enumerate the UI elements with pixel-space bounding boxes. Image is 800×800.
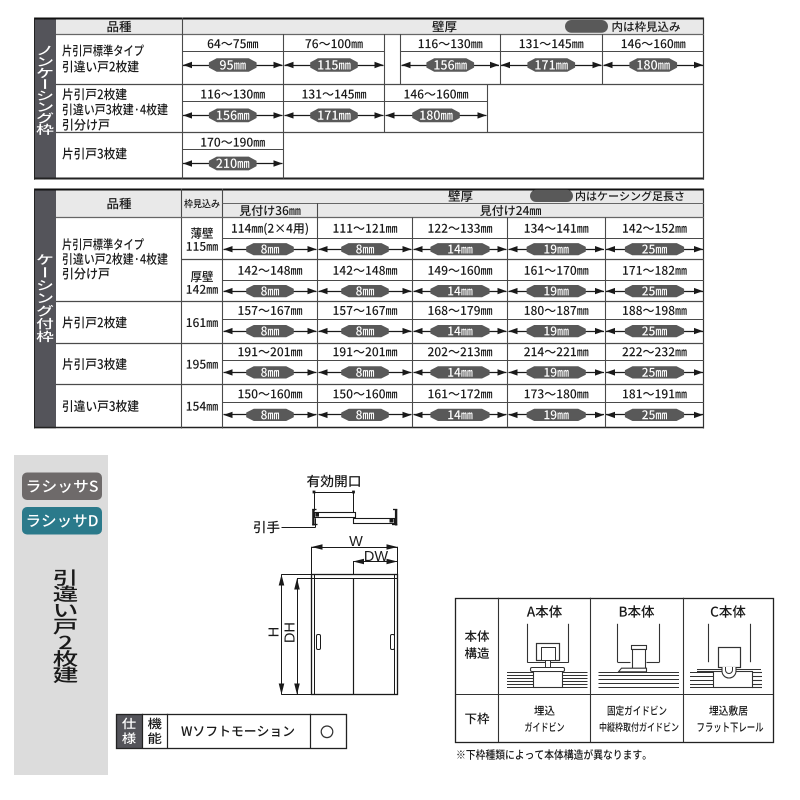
svg-text:DH: DH bbox=[283, 622, 299, 643]
svg-text:H: H bbox=[267, 627, 283, 637]
svg-text:DW: DW bbox=[364, 549, 388, 565]
svg-text:W: W bbox=[349, 534, 363, 550]
